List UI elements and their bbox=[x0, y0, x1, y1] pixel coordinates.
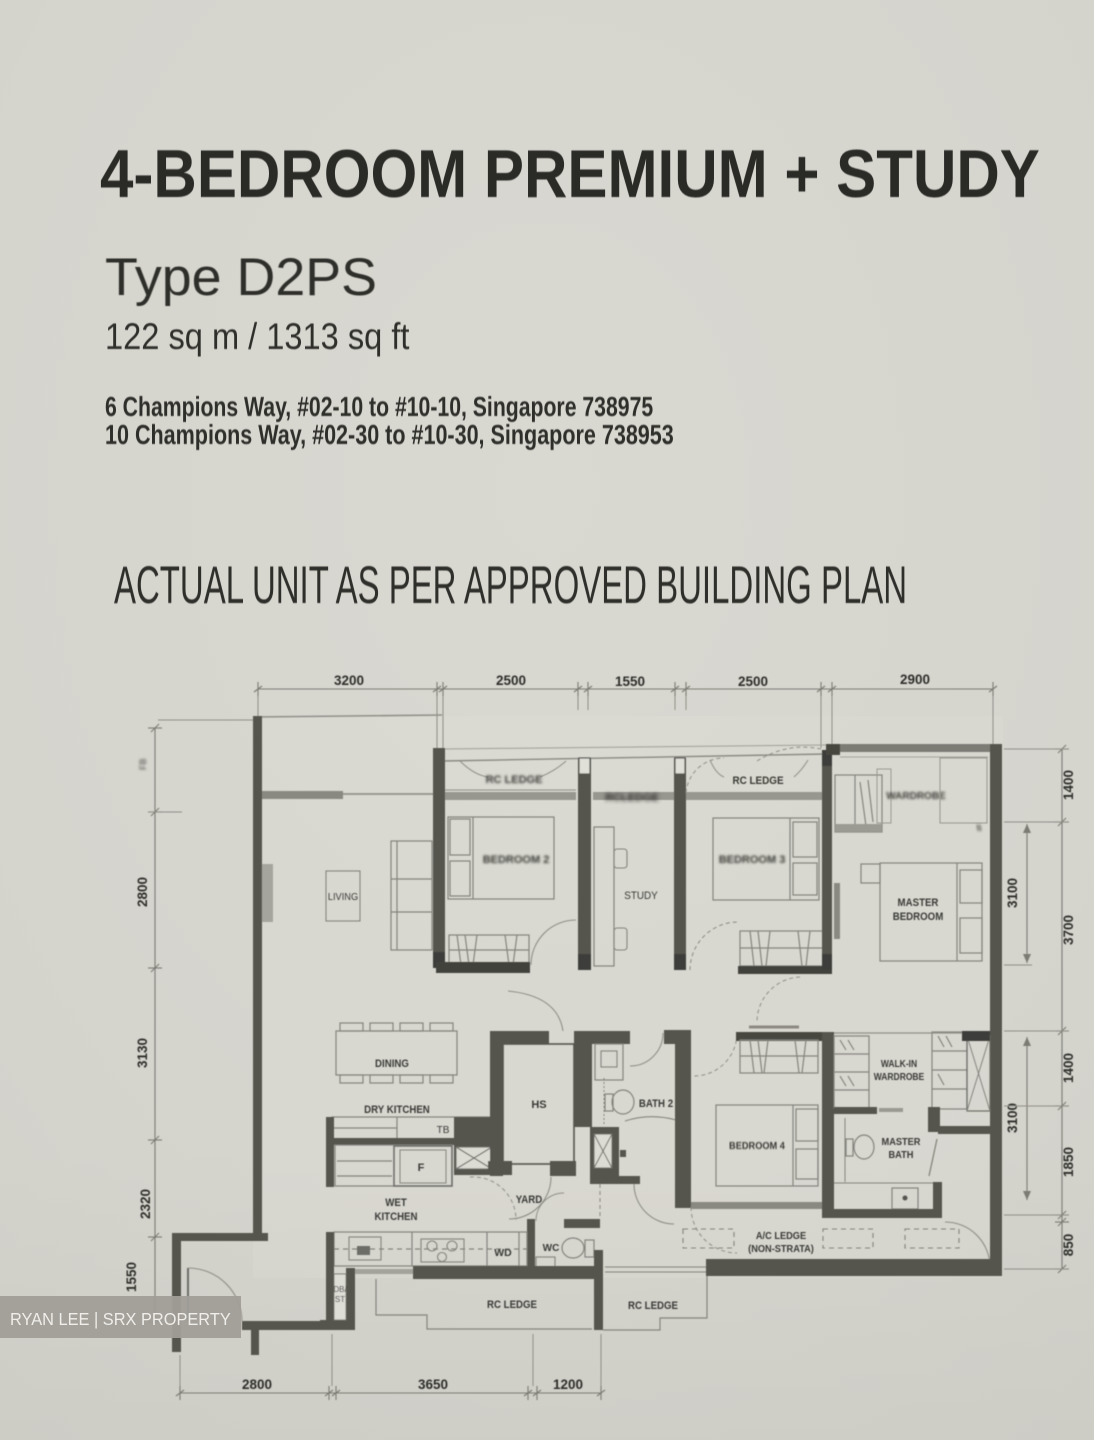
svg-text:4-BEDROOM PREMIUM + STUDY: 4-BEDROOM PREMIUM + STUDY bbox=[100, 136, 1040, 212]
svg-text:STUDY: STUDY bbox=[624, 891, 658, 903]
svg-text:DRY KITCHEN: DRY KITCHEN bbox=[364, 1105, 430, 1117]
svg-text:RC LEDGE: RC LEDGE bbox=[486, 774, 543, 786]
svg-text:RC LEDGE: RC LEDGE bbox=[732, 776, 783, 788]
svg-text:3700: 3700 bbox=[1061, 915, 1076, 945]
svg-text:2800: 2800 bbox=[135, 877, 150, 907]
svg-text:(NON-STRATA): (NON-STRATA) bbox=[748, 1244, 814, 1256]
svg-text:BEDROOM 4: BEDROOM 4 bbox=[729, 1141, 785, 1153]
svg-text:HS: HS bbox=[531, 1099, 546, 1111]
svg-text:BATH 2: BATH 2 bbox=[639, 1099, 673, 1111]
svg-text:DINING: DINING bbox=[375, 1059, 409, 1071]
svg-text:DB/: DB/ bbox=[333, 1285, 347, 1294]
svg-text:F: F bbox=[418, 1162, 425, 1174]
svg-text:2500: 2500 bbox=[738, 674, 768, 689]
svg-text:3130: 3130 bbox=[135, 1038, 150, 1068]
svg-text:RYAN LEE | SRX PROPERTY: RYAN LEE | SRX PROPERTY bbox=[10, 1310, 231, 1330]
svg-text:BATH: BATH bbox=[889, 1150, 914, 1162]
svg-text:ACTUAL UNIT AS PER APPROVED BU: ACTUAL UNIT AS PER APPROVED BUILDING PLA… bbox=[114, 556, 907, 615]
svg-text:WC: WC bbox=[543, 1243, 560, 1254]
svg-text:A/C LEDGE: A/C LEDGE bbox=[756, 1231, 807, 1243]
svg-text:2500: 2500 bbox=[496, 673, 526, 688]
svg-text:FB: FB bbox=[138, 758, 148, 770]
svg-text:Type D2PS: Type D2PS bbox=[105, 248, 377, 307]
svg-text:WD: WD bbox=[494, 1247, 512, 1259]
svg-text:\\: \\ bbox=[976, 823, 982, 833]
svg-text:RC LEDGE: RC LEDGE bbox=[487, 1300, 537, 1312]
svg-text:KITCHEN: KITCHEN bbox=[374, 1212, 417, 1224]
svg-text:MASTER: MASTER bbox=[898, 898, 939, 910]
svg-text:1200: 1200 bbox=[553, 1377, 583, 1392]
svg-text:RC LEDGE: RC LEDGE bbox=[628, 1301, 678, 1313]
svg-text:3100: 3100 bbox=[1005, 878, 1020, 908]
svg-text:1400: 1400 bbox=[1061, 1053, 1076, 1083]
svg-text:3100: 3100 bbox=[1005, 1103, 1020, 1133]
svg-text:WARDROBE: WARDROBE bbox=[874, 1071, 924, 1082]
svg-text:WALK-IN: WALK-IN bbox=[881, 1058, 918, 1069]
svg-text:1400: 1400 bbox=[1061, 770, 1076, 800]
svg-text:WET: WET bbox=[385, 1198, 407, 1210]
svg-text:BEDROOM 3: BEDROOM 3 bbox=[719, 854, 786, 866]
svg-text:3200: 3200 bbox=[334, 673, 364, 688]
svg-text:BEDROOM 2: BEDROOM 2 bbox=[483, 854, 550, 866]
svg-text:10 Champions Way, #02-30 to #1: 10 Champions Way, #02-30 to #10-30, Sing… bbox=[105, 419, 674, 450]
svg-text:2800: 2800 bbox=[242, 1377, 272, 1392]
svg-text:LIVING: LIVING bbox=[328, 892, 358, 904]
svg-text:122 sq m / 1313 sq ft: 122 sq m / 1313 sq ft bbox=[105, 316, 410, 358]
svg-text:TB: TB bbox=[437, 1125, 450, 1136]
svg-text:WARDROBE: WARDROBE bbox=[886, 791, 946, 802]
svg-text:ST: ST bbox=[335, 1295, 345, 1304]
svg-text:YARD: YARD bbox=[516, 1195, 543, 1207]
svg-text:1550: 1550 bbox=[124, 1262, 139, 1292]
svg-text:MASTER: MASTER bbox=[882, 1137, 921, 1149]
svg-text:1550: 1550 bbox=[615, 674, 645, 689]
svg-text:850: 850 bbox=[1061, 1234, 1076, 1257]
svg-text:3650: 3650 bbox=[418, 1377, 448, 1392]
svg-text:2900: 2900 bbox=[900, 672, 930, 687]
svg-text:BEDROOM: BEDROOM bbox=[893, 912, 944, 924]
svg-text:6 Champions Way, #02-10 to #10: 6 Champions Way, #02-10 to #10-10, Singa… bbox=[105, 392, 653, 422]
svg-text:2320: 2320 bbox=[138, 1189, 153, 1219]
svg-text:1850: 1850 bbox=[1061, 1147, 1076, 1177]
svg-text:RCLEDGE: RCLEDGE bbox=[605, 792, 659, 804]
